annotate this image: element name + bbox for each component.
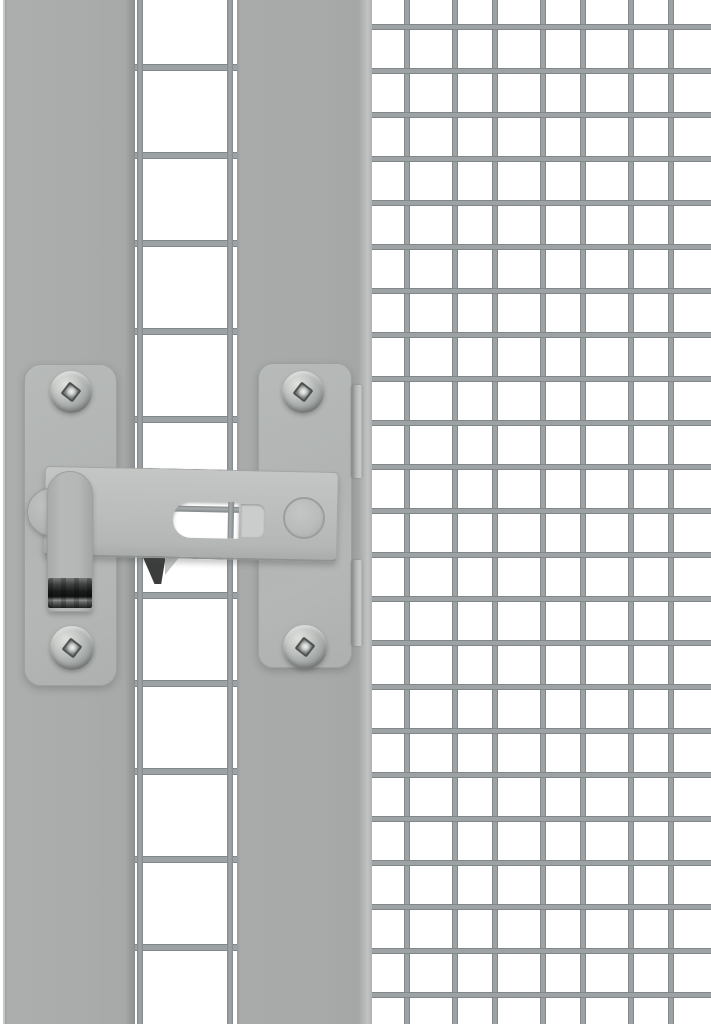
screw-drive-recess bbox=[60, 381, 81, 402]
catch-plate-edge-tab-top bbox=[352, 385, 363, 478]
screw-drive-recess bbox=[292, 381, 313, 402]
mesh-wire-through-slot-vertical bbox=[227, 502, 234, 539]
latch-bar-slot bbox=[172, 501, 239, 539]
latch-end-pin bbox=[283, 497, 325, 539]
right-mesh-panel bbox=[372, 0, 711, 1024]
screw-head-top-left bbox=[50, 371, 92, 413]
catch-plate-edge-tab-bottom bbox=[352, 560, 363, 646]
screw-head-bottom-right bbox=[283, 625, 327, 669]
screw-drive-recess bbox=[61, 637, 82, 658]
screw-drive-recess bbox=[294, 636, 315, 657]
latch-handle-strap bbox=[47, 471, 93, 612]
screw-head-top-right bbox=[282, 371, 324, 413]
latch-finger-grip bbox=[48, 578, 92, 608]
screw-head-bottom-left bbox=[50, 626, 94, 670]
gate-latch-product-photo bbox=[0, 0, 711, 1024]
latch-bar-stamped-recess bbox=[240, 504, 265, 537]
